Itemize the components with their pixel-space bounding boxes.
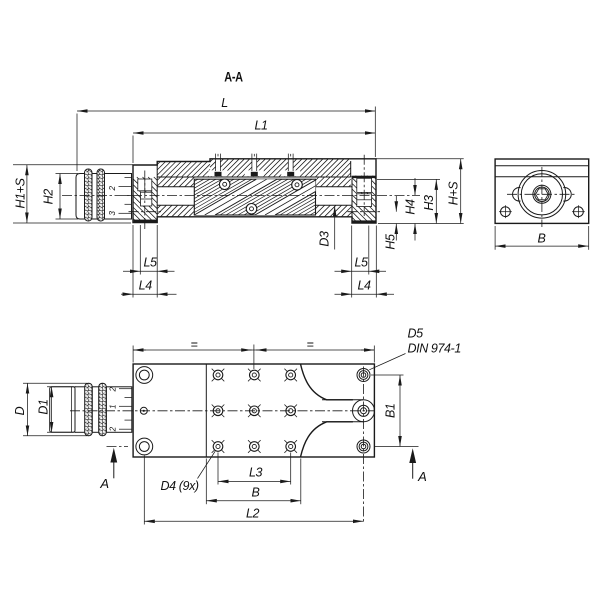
- svg-text:A: A: [417, 469, 426, 484]
- svg-text:A: A: [99, 476, 108, 491]
- svg-text:D: D: [13, 406, 27, 415]
- svg-text:L4: L4: [357, 279, 371, 293]
- svg-text:B: B: [252, 485, 260, 499]
- svg-text:B: B: [538, 232, 546, 246]
- svg-text:L3: L3: [249, 466, 263, 480]
- svg-text:B1: B1: [384, 404, 398, 419]
- svg-text:H5: H5: [383, 234, 397, 250]
- svg-text:1: 1: [108, 405, 117, 409]
- svg-text:D4 (9x): D4 (9x): [161, 479, 199, 493]
- svg-text:L5: L5: [354, 256, 368, 270]
- svg-text:H4: H4: [403, 199, 417, 215]
- svg-text:=: =: [307, 337, 314, 351]
- svg-text:H3: H3: [422, 195, 436, 211]
- svg-text:L4: L4: [139, 279, 153, 293]
- svg-text:H2: H2: [42, 189, 56, 205]
- svg-text:A-A: A-A: [224, 69, 243, 85]
- svg-text:L1: L1: [254, 119, 267, 133]
- svg-text:L2: L2: [246, 506, 260, 520]
- svg-text:D1: D1: [37, 399, 51, 414]
- svg-text:D3: D3: [318, 231, 332, 247]
- svg-text:H+S: H+S: [447, 181, 461, 206]
- svg-text:H1+S: H1+S: [14, 177, 28, 208]
- svg-text:L: L: [221, 96, 228, 110]
- svg-text:D5: D5: [408, 327, 424, 341]
- svg-text:=: =: [191, 337, 198, 351]
- svg-text:DIN 974-1: DIN 974-1: [408, 342, 461, 356]
- svg-text:L5: L5: [143, 256, 157, 270]
